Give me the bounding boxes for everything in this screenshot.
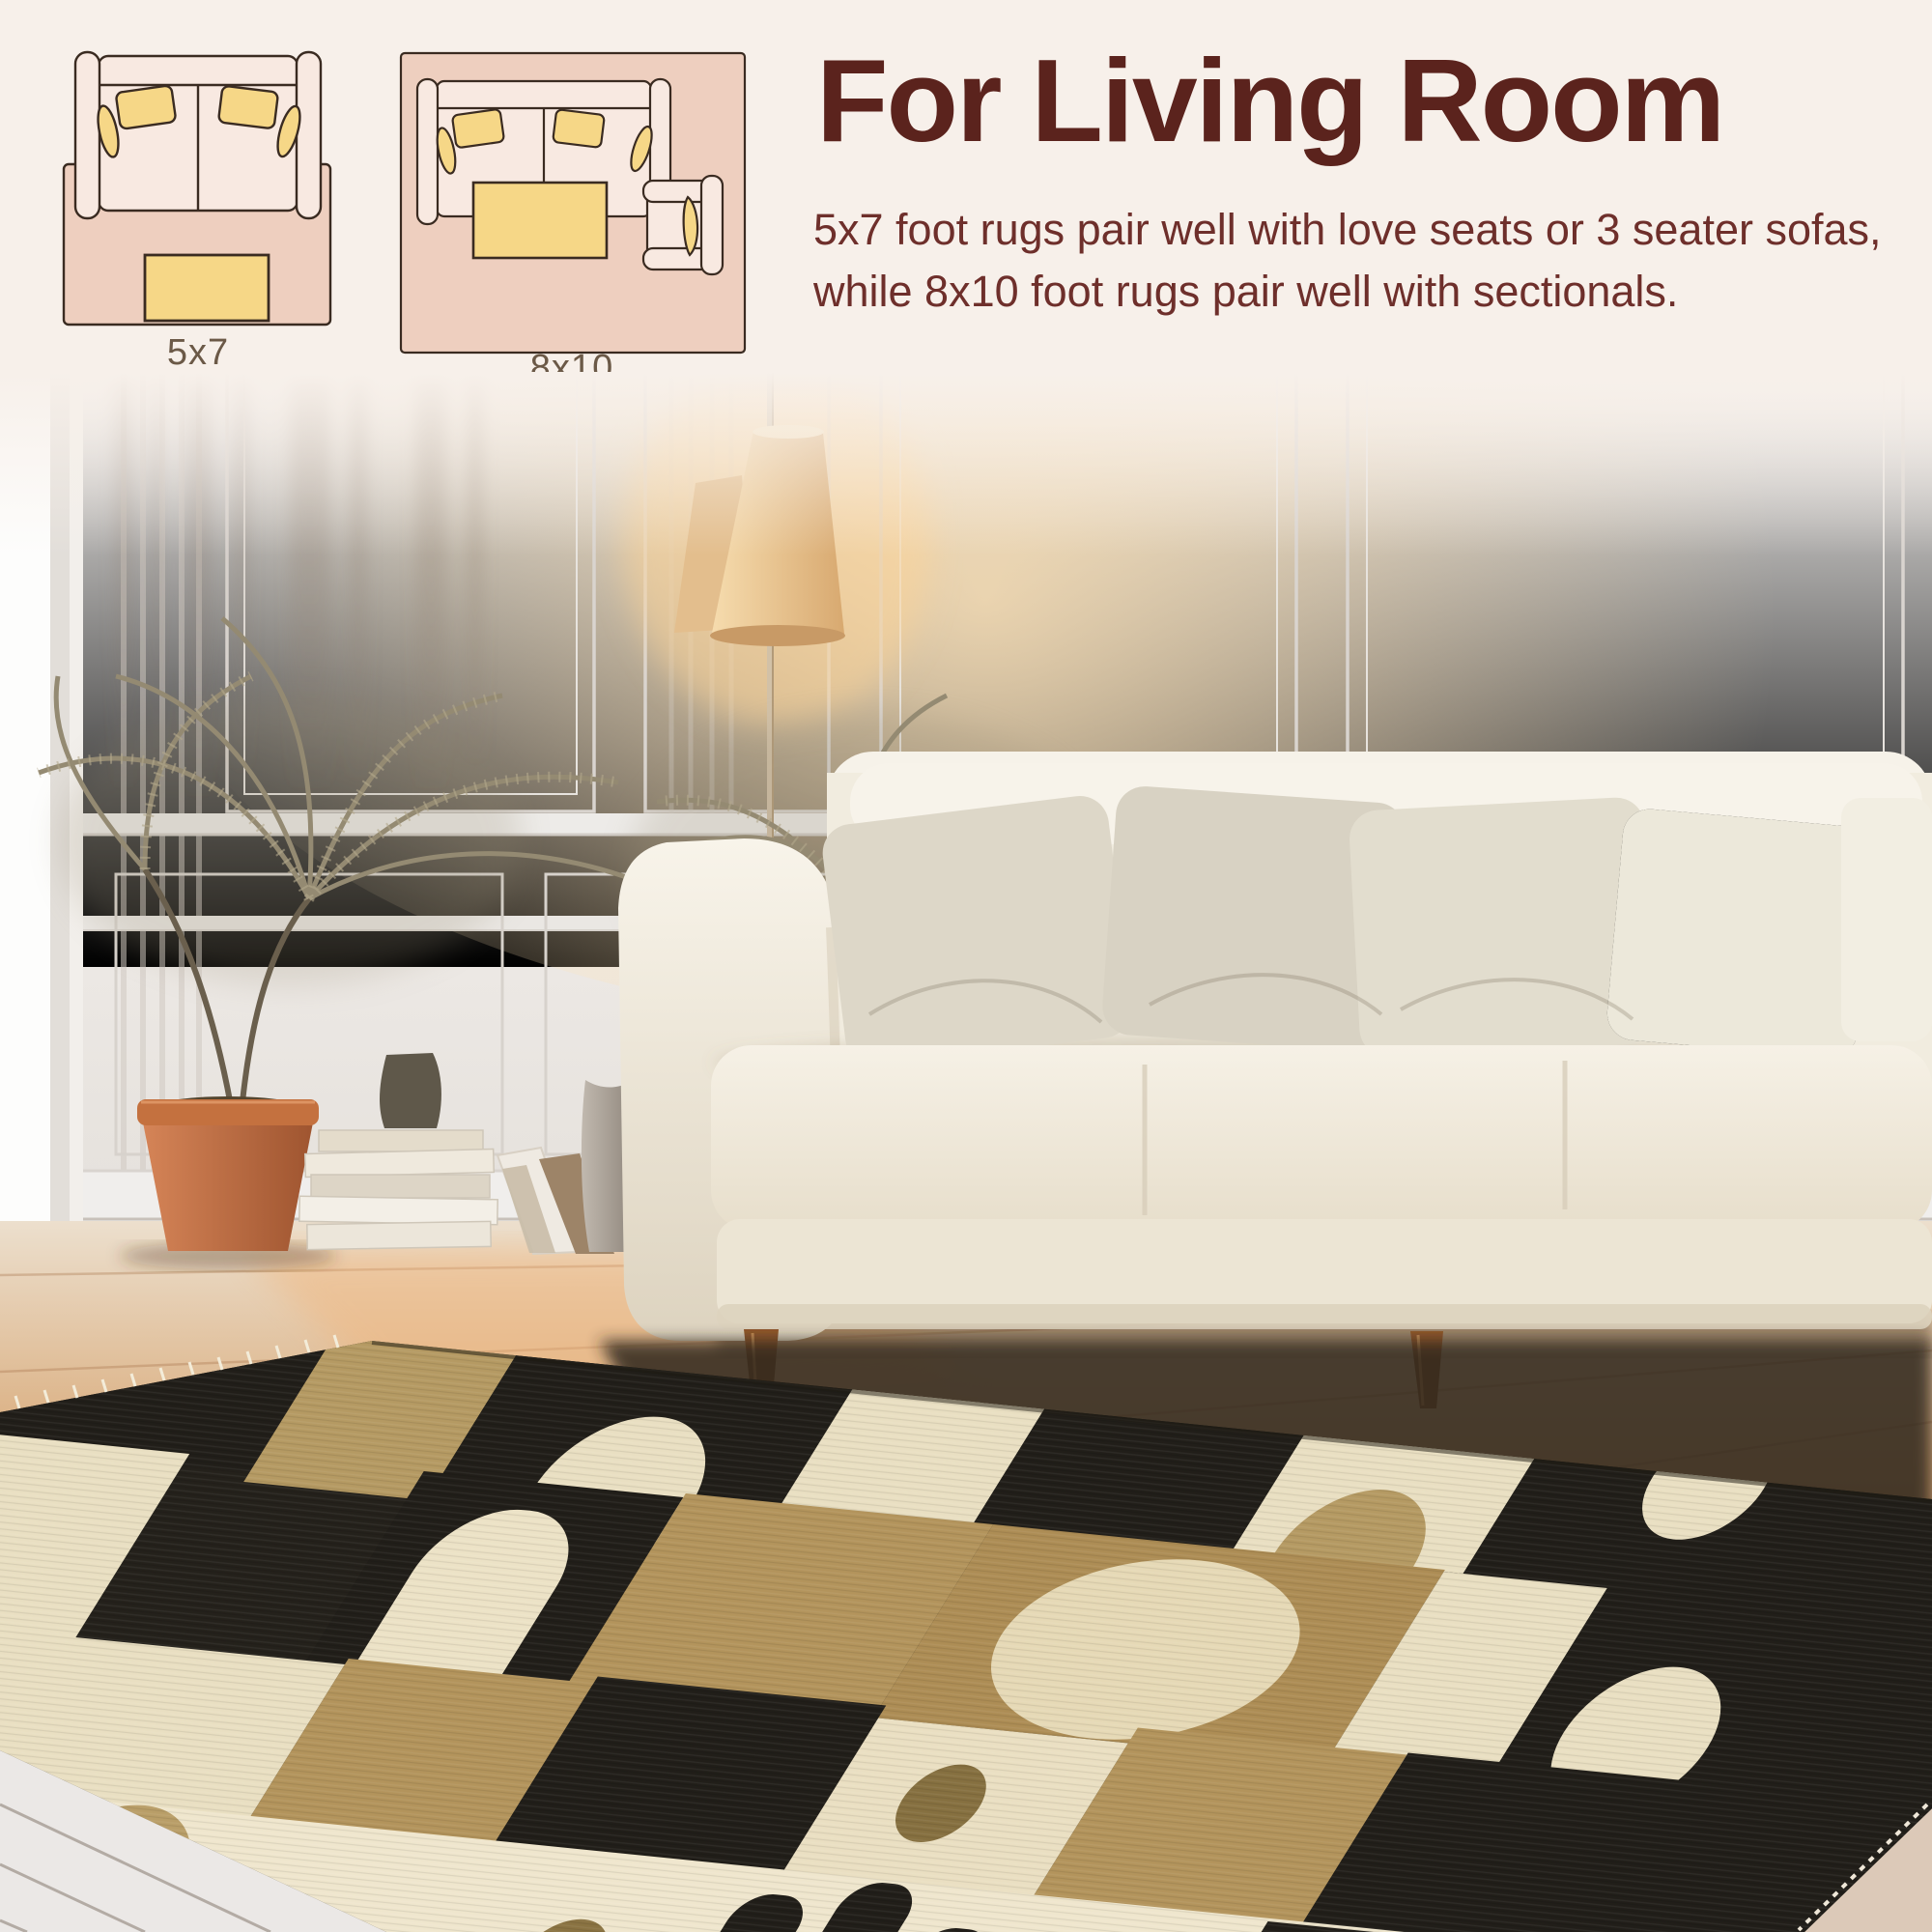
sofa-pillows [715,763,1932,1090]
rug-size-diagram-8x10 [398,50,748,355]
sofa-seat-cushion [711,1045,1932,1231]
diagram-loveseat [75,52,321,218]
product-infographic: 5x7 [0,0,1932,1932]
page-title: For Living Room [816,39,1898,162]
living-room-photo [0,372,1932,1932]
diagram-coffee-table [145,255,269,321]
size-guide-header: 5x7 [0,0,1932,386]
diagram-armchair [643,176,723,274]
sculpture [380,1053,441,1128]
photo-top-fade [0,372,1932,555]
size-label-5x7: 5x7 [126,332,270,374]
page-description: 5x7 foot rugs pair well with love seats … [813,199,1932,323]
rug-size-diagram-5x7 [58,41,338,330]
diagram-coffee-table-2 [473,183,607,258]
